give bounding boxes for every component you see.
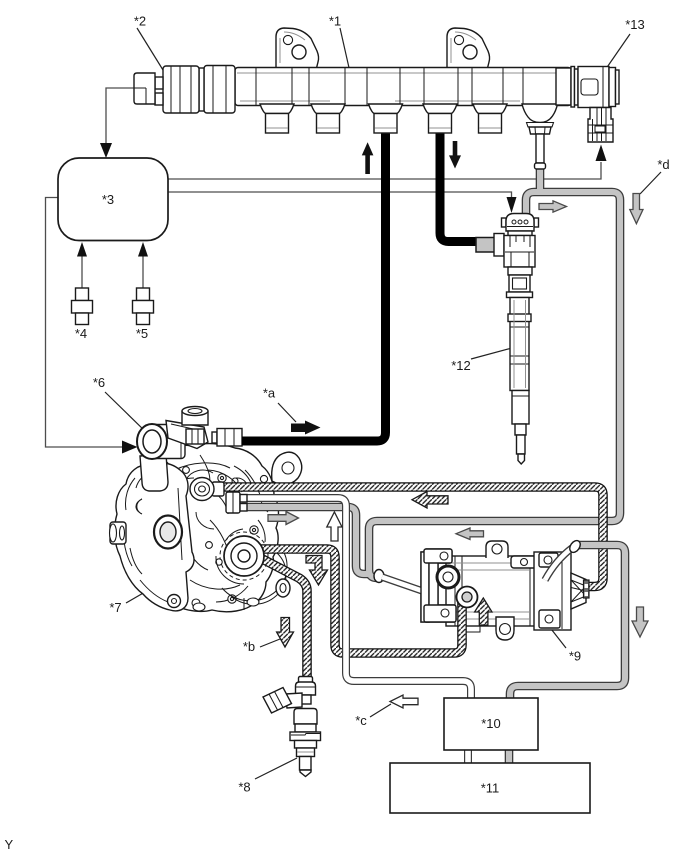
svg-text:*9: *9 [569,649,581,664]
svg-text:*13: *13 [625,17,645,32]
svg-text:*1: *1 [329,14,341,29]
svg-text:Y: Y [5,837,14,852]
svg-text:*12: *12 [451,358,471,373]
svg-text:*3: *3 [102,192,114,207]
svg-text:*8: *8 [238,780,250,795]
svg-text:*5: *5 [136,326,148,341]
svg-text:*11: *11 [481,781,500,796]
svg-text:*a: *a [263,386,276,401]
svg-text:*4: *4 [75,326,87,341]
svg-text:*10: *10 [481,716,501,731]
svg-text:*7: *7 [109,600,121,615]
svg-text:*2: *2 [134,14,146,29]
svg-text:*c: *c [355,713,367,728]
svg-text:*6: *6 [93,375,105,390]
svg-text:*b: *b [243,639,255,654]
svg-text:*d: *d [657,157,669,172]
